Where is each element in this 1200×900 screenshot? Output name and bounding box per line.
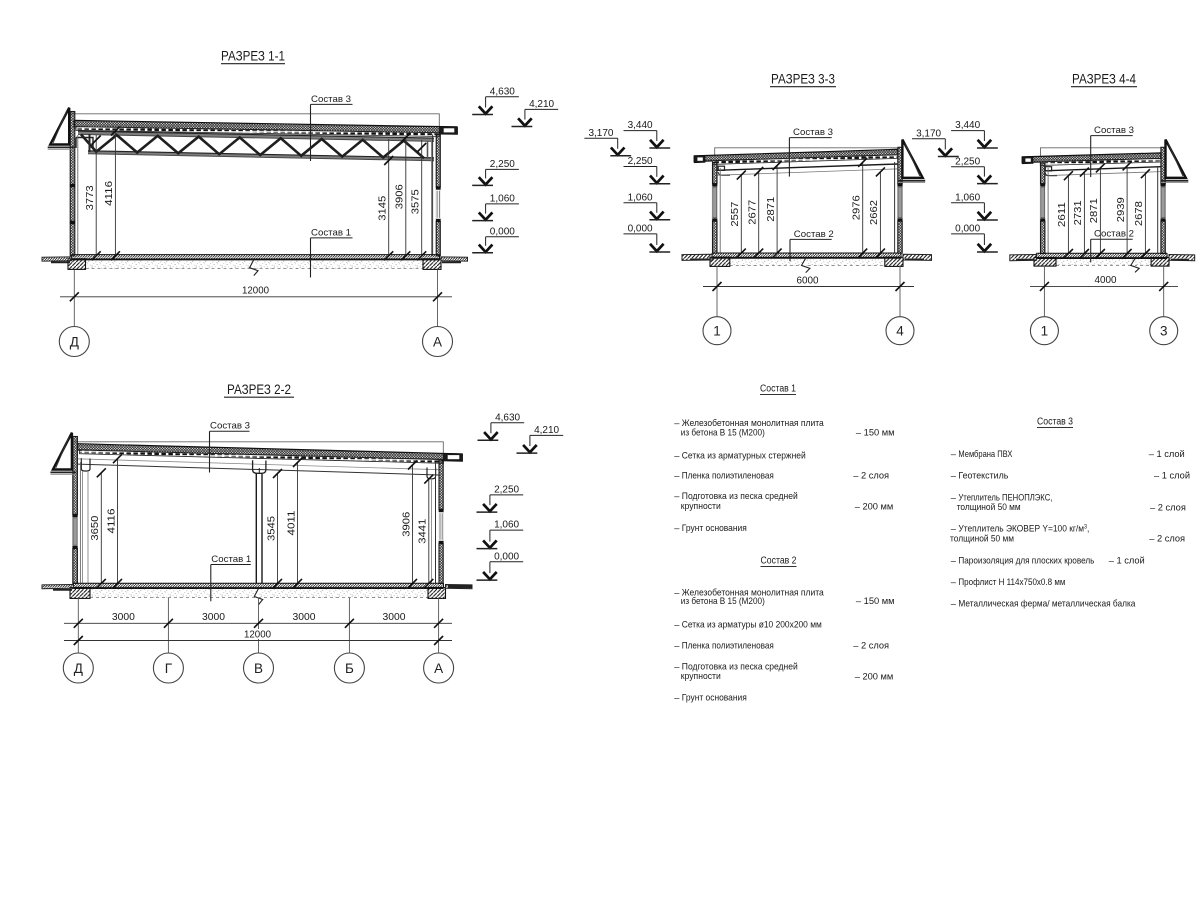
svg-text:12000: 12000 — [242, 285, 269, 297]
svg-text:Мембрана ПВХ: Мембрана ПВХ — [958, 449, 1012, 459]
svg-text:Состав 2: Состав 2 — [761, 556, 797, 567]
svg-text:–: – — [674, 620, 680, 630]
svg-text:4116: 4116 — [105, 508, 117, 533]
svg-text:1: 1 — [713, 324, 721, 339]
svg-text:3000: 3000 — [293, 611, 316, 623]
svg-text:Состав 1: Состав 1 — [311, 227, 351, 238]
svg-text:–: – — [674, 692, 680, 702]
svg-text:4,210: 4,210 — [529, 99, 554, 110]
svg-text:А: А — [434, 661, 443, 676]
svg-text:3650: 3650 — [89, 515, 101, 540]
svg-text:толщиной 50 мм: толщиной 50 мм — [950, 533, 1014, 543]
svg-text:– 1 слой: – 1 слой — [1149, 449, 1185, 459]
svg-text:4,630: 4,630 — [495, 412, 520, 423]
svg-text:Д: Д — [70, 334, 79, 349]
svg-text:РАЗРЕЗ 1-1: РАЗРЕЗ 1-1 — [221, 49, 285, 64]
svg-text:3000: 3000 — [383, 611, 406, 623]
svg-text:– 2 слоя: – 2 слоя — [853, 641, 889, 651]
svg-text:2871: 2871 — [765, 197, 777, 222]
svg-text:– 2 слоя: – 2 слоя — [1149, 534, 1185, 544]
svg-text:Утеплитель ЭКОВЕР Y=100 кг/м3,: Утеплитель ЭКОВЕР Y=100 кг/м3, — [958, 523, 1089, 533]
svg-text:РАЗРЕЗ 3-3: РАЗРЕЗ 3-3 — [771, 72, 835, 87]
svg-text:–: – — [674, 661, 680, 671]
svg-text:0,000: 0,000 — [628, 224, 653, 235]
svg-text:– 150 мм: – 150 мм — [856, 427, 895, 437]
svg-text:Б: Б — [345, 661, 354, 676]
svg-text:2677: 2677 — [747, 200, 759, 225]
svg-text:2,250: 2,250 — [494, 485, 519, 496]
svg-text:Пленка полиэтиленовая: Пленка полиэтиленовая — [682, 471, 774, 481]
svg-text:0,000: 0,000 — [494, 551, 519, 562]
svg-text:2,250: 2,250 — [490, 159, 515, 170]
svg-text:–: – — [951, 470, 957, 480]
svg-text:–: – — [674, 418, 680, 428]
svg-text:2976: 2976 — [851, 195, 863, 220]
svg-text:–: – — [674, 641, 680, 651]
svg-text:4,210: 4,210 — [534, 425, 559, 436]
svg-text:3000: 3000 — [202, 611, 225, 623]
svg-text:Подготовка из песка средней: Подготовка из песка средней — [682, 491, 798, 501]
svg-text:Состав 3: Состав 3 — [1037, 417, 1073, 428]
svg-text:из бетона В 15 (М200): из бетона В 15 (М200) — [681, 596, 765, 606]
svg-text:2871: 2871 — [1088, 198, 1100, 223]
svg-text:Грунт основания: Грунт основания — [682, 692, 747, 702]
svg-text:–: – — [951, 523, 957, 533]
svg-text:0,000: 0,000 — [955, 224, 980, 235]
svg-text:2731: 2731 — [1072, 200, 1084, 225]
svg-text:3545: 3545 — [265, 516, 277, 541]
svg-text:–: – — [674, 491, 680, 501]
svg-text:–: – — [674, 450, 680, 460]
svg-text:4116: 4116 — [103, 181, 115, 206]
svg-text:2557: 2557 — [729, 201, 741, 226]
svg-text:Геотекстиль: Геотекстиль — [958, 470, 1008, 480]
svg-text:Состав 3: Состав 3 — [793, 127, 833, 138]
svg-text:3906: 3906 — [394, 184, 406, 209]
svg-text:3,440: 3,440 — [955, 120, 980, 131]
svg-text:3: 3 — [1160, 324, 1168, 339]
svg-text:Пароизоляция для плоских крове: Пароизоляция для плоских кровель — [958, 556, 1094, 566]
svg-text:2611: 2611 — [1056, 202, 1068, 227]
svg-text:– 200 мм: – 200 мм — [855, 501, 894, 511]
svg-text:6000: 6000 — [797, 274, 819, 286]
svg-text:2662: 2662 — [868, 200, 880, 225]
svg-text:0,000: 0,000 — [490, 226, 515, 237]
svg-text:3906: 3906 — [400, 512, 412, 537]
svg-text:крупности: крупности — [681, 501, 721, 511]
svg-text:4011: 4011 — [285, 510, 297, 535]
svg-text:4: 4 — [896, 324, 904, 339]
svg-text:Состав 2: Состав 2 — [794, 229, 834, 240]
svg-text:– 2 слоя: – 2 слоя — [853, 471, 889, 481]
svg-text:Сетка из арматуры ø10 200x200: Сетка из арматуры ø10 200x200 мм — [682, 620, 822, 630]
svg-text:2,250: 2,250 — [628, 156, 653, 167]
svg-text:– 150 мм: – 150 мм — [856, 596, 895, 606]
svg-text:– 200 мм: – 200 мм — [855, 672, 894, 682]
svg-text:Пленка полиэтиленовая: Пленка полиэтиленовая — [682, 641, 774, 651]
svg-text:–: – — [951, 598, 957, 608]
svg-text:1,060: 1,060 — [955, 192, 980, 203]
svg-text:1,060: 1,060 — [628, 192, 653, 203]
svg-text:3145: 3145 — [377, 196, 389, 221]
svg-text:А: А — [433, 334, 442, 349]
svg-text:2,250: 2,250 — [955, 156, 980, 167]
svg-text:3441: 3441 — [417, 519, 429, 544]
svg-text:Состав 3: Состав 3 — [210, 421, 250, 432]
svg-text:– 1 слой: – 1 слой — [1154, 470, 1190, 480]
svg-text:Состав 1: Состав 1 — [760, 384, 796, 395]
svg-text:3,170: 3,170 — [916, 128, 941, 139]
svg-text:12000: 12000 — [244, 628, 271, 640]
svg-text:1,060: 1,060 — [494, 520, 519, 531]
svg-text:–: – — [674, 523, 680, 533]
svg-text:Металлическая ферма/ металличе: Металлическая ферма/ металлическая балка — [958, 598, 1136, 608]
svg-text:Подготовка из песка средней: Подготовка из песка средней — [682, 661, 798, 671]
svg-text:3000: 3000 — [112, 611, 135, 623]
svg-text:Профлист Н 114x750x0.8 мм: Профлист Н 114x750x0.8 мм — [958, 577, 1065, 587]
svg-text:4,630: 4,630 — [490, 86, 515, 97]
svg-text:1: 1 — [1041, 324, 1049, 339]
svg-text:–: – — [674, 587, 680, 597]
svg-text:3,440: 3,440 — [628, 120, 653, 131]
svg-text:Грунт основания: Грунт основания — [682, 523, 747, 533]
svg-text:Состав 3: Состав 3 — [1094, 125, 1134, 136]
svg-text:2678: 2678 — [1133, 201, 1145, 226]
svg-text:Д: Д — [74, 661, 83, 676]
svg-text:3,170: 3,170 — [588, 128, 613, 139]
svg-text:толщиной 50 мм: толщиной 50 мм — [957, 502, 1021, 512]
svg-text:из бетона В 15 (М200): из бетона В 15 (М200) — [681, 427, 765, 437]
svg-text:В: В — [254, 661, 263, 676]
svg-text:–: – — [951, 556, 957, 566]
svg-text:3773: 3773 — [84, 185, 96, 210]
svg-text:–: – — [951, 577, 957, 587]
svg-text:Состав 3: Состав 3 — [311, 94, 351, 105]
svg-text:крупности: крупности — [681, 671, 721, 681]
svg-text:– 2 слоя: – 2 слоя — [1150, 502, 1186, 512]
svg-text:4000: 4000 — [1095, 274, 1117, 286]
svg-text:–: – — [951, 449, 957, 459]
svg-text:Сетка из арматурных стержней: Сетка из арматурных стержней — [682, 450, 806, 460]
svg-text:РАЗРЕЗ 2-2: РАЗРЕЗ 2-2 — [227, 382, 291, 397]
svg-text:2939: 2939 — [1115, 197, 1127, 222]
svg-text:Состав 1: Состав 1 — [211, 554, 251, 565]
svg-text:– 1 слой: – 1 слой — [1109, 556, 1145, 566]
svg-text:Г: Г — [165, 661, 173, 676]
svg-text:–: – — [674, 471, 680, 481]
svg-text:3575: 3575 — [410, 189, 422, 214]
svg-text:РАЗРЕЗ 4-4: РАЗРЕЗ 4-4 — [1072, 72, 1136, 87]
svg-text:1,060: 1,060 — [490, 194, 515, 205]
